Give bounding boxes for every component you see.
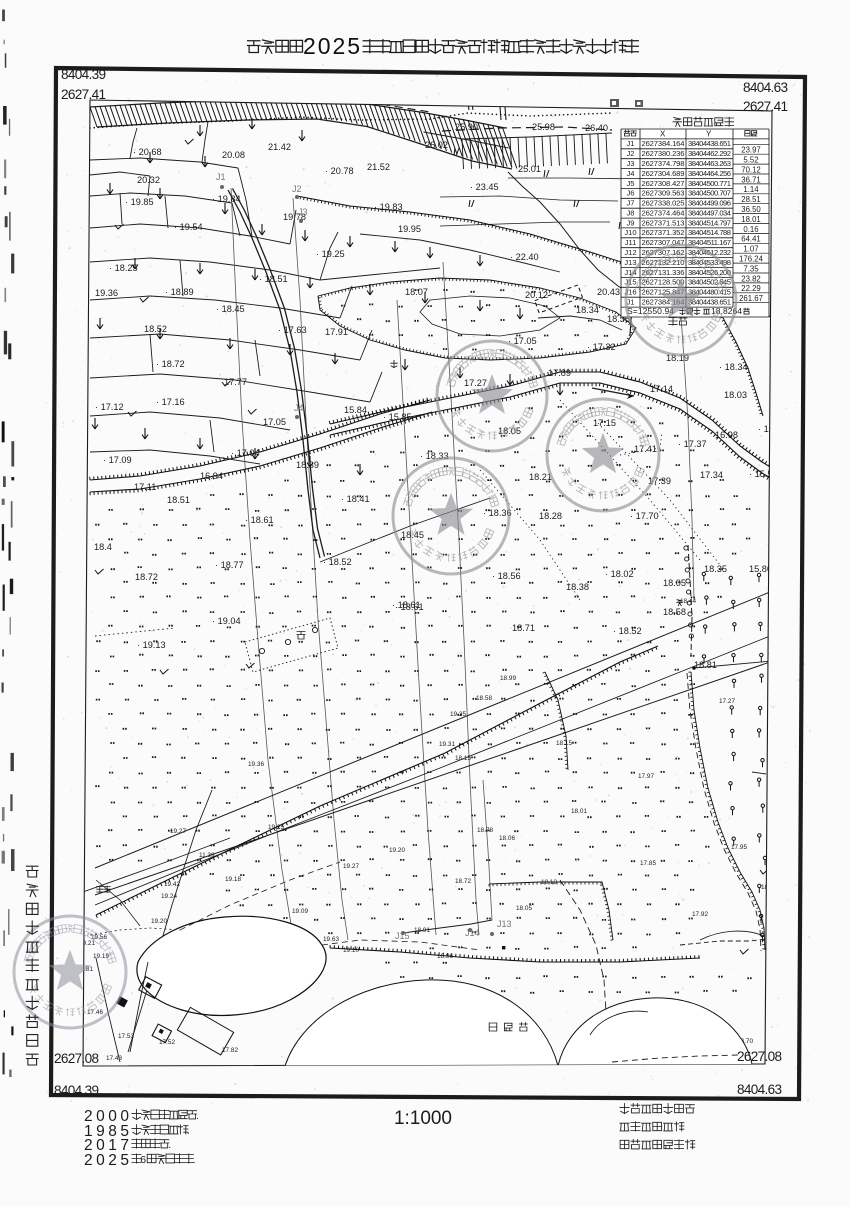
svg-text:2627128.500: 2627128.500	[642, 278, 685, 287]
svg-text:2627380.236: 2627380.236	[642, 149, 685, 158]
svg-text:19.42: 19.42	[164, 881, 180, 888]
svg-text:· 18.72: · 18.72	[156, 359, 185, 369]
svg-text:16.94: 16.94	[200, 471, 223, 481]
svg-text:1:1000: 1:1000	[394, 1108, 452, 1129]
svg-text:· 18.34: · 18.34	[719, 362, 748, 372]
svg-text:2627.41: 2627.41	[743, 99, 788, 114]
svg-text:38404499.096: 38404499.096	[688, 199, 731, 208]
svg-text:18.05: 18.05	[663, 578, 686, 588]
svg-text:· 19.04: · 19.04	[212, 616, 241, 626]
svg-text:· 15.85: · 15.85	[383, 412, 412, 422]
svg-text:18.01: 18.01	[741, 215, 761, 224]
svg-text:8404.39: 8404.39	[61, 67, 106, 82]
svg-text:1.14: 1.14	[743, 185, 759, 194]
svg-text:18.07: 18.07	[405, 287, 428, 297]
svg-text:17.53: 17.53	[118, 1033, 134, 1040]
svg-text:· 18.61: · 18.61	[395, 602, 424, 612]
svg-text:J11: J11	[625, 238, 637, 247]
svg-text:17.97: 17.97	[638, 773, 654, 780]
svg-text:· 22.40: · 22.40	[510, 252, 539, 262]
svg-text:25.01: 25.01	[518, 164, 541, 174]
svg-text:· 18.52: · 18.52	[323, 557, 352, 567]
svg-text:18.51: 18.51	[167, 495, 190, 505]
svg-text:· 19.54: · 19.54	[174, 222, 203, 232]
svg-text:38404500.707: 38404500.707	[688, 189, 731, 198]
svg-text:21.52: 21.52	[367, 162, 390, 172]
svg-text:· 18.61: · 18.61	[245, 515, 274, 525]
svg-text:17.85: 17.85	[640, 860, 656, 867]
svg-text:19.31: 19.31	[439, 741, 455, 748]
svg-text:176.24: 176.24	[739, 255, 764, 264]
svg-text:18.15: 18.15	[455, 755, 471, 762]
svg-text:20.43: 20.43	[597, 287, 620, 297]
svg-text:18.71: 18.71	[512, 623, 535, 633]
svg-text:17.89: 17.89	[548, 368, 571, 378]
svg-text:J8: J8	[626, 209, 634, 218]
svg-text:70.12: 70.12	[741, 165, 761, 174]
svg-text:38404500.771: 38404500.771	[688, 179, 731, 188]
svg-text:18.38: 18.38	[566, 582, 589, 592]
svg-text:18.39: 18.39	[296, 460, 319, 470]
svg-text:· 17.04: · 17.04	[231, 448, 260, 458]
svg-text:18.05: 18.05	[516, 905, 532, 912]
svg-text:17.95: 17.95	[731, 844, 747, 851]
svg-text:19.95: 19.95	[398, 224, 421, 234]
svg-text:17.77: 17.77	[224, 377, 247, 387]
svg-text:2627374.464: 2627374.464	[642, 209, 685, 218]
svg-text:19.18: 19.18	[225, 876, 241, 883]
svg-text:19.09: 19.09	[292, 908, 308, 915]
svg-text:2627371.352: 2627371.352	[642, 228, 685, 237]
svg-text:· 17.12: · 17.12	[95, 402, 124, 412]
svg-text:8404.39: 8404.39	[54, 1083, 99, 1098]
svg-text:38404497.034: 38404497.034	[688, 209, 731, 218]
svg-text:18.4: 18.4	[94, 542, 112, 552]
svg-text:· 20.68: · 20.68	[133, 147, 162, 157]
svg-text:J14: J14	[465, 928, 480, 938]
svg-text:18.99: 18.99	[500, 675, 516, 682]
svg-text:19.27: 19.27	[343, 863, 359, 870]
svg-text:18.91: 18.91	[414, 927, 430, 934]
svg-text:· 19.13: · 19.13	[137, 640, 166, 650]
svg-text:64.41: 64.41	[741, 235, 761, 244]
svg-text:· 19.25: · 19.25	[316, 249, 345, 259]
svg-text:17.05: 17.05	[263, 417, 286, 427]
svg-text:J2: J2	[626, 149, 634, 158]
svg-text:17.27: 17.27	[464, 378, 487, 388]
svg-text:18.03: 18.03	[724, 390, 747, 400]
svg-text:18.8264: 18.8264	[711, 306, 742, 316]
svg-text:X: X	[660, 129, 666, 138]
svg-text:J5: J5	[626, 179, 634, 188]
svg-text:19.24: 19.24	[161, 893, 177, 900]
svg-text:19.36: 19.36	[248, 761, 264, 768]
svg-text:18.06: 18.06	[499, 835, 515, 842]
svg-text:18.58: 18.58	[476, 695, 492, 702]
svg-text:8404.63: 8404.63	[743, 80, 788, 95]
svg-text:2627304.689: 2627304.689	[642, 169, 685, 178]
svg-text:38404462.292: 38404462.292	[688, 149, 731, 158]
svg-text:.: .	[168, 1140, 171, 1151]
svg-text:18.72: 18.72	[455, 878, 471, 885]
svg-text:· 18.77: · 18.77	[215, 560, 244, 570]
svg-text:· 18.45: · 18.45	[216, 304, 245, 314]
svg-text:25.90: 25.90	[455, 122, 478, 132]
svg-text:19.20: 19.20	[389, 847, 405, 854]
svg-text:38404438.651: 38404438.651	[688, 139, 731, 148]
svg-text:19.25: 19.25	[268, 824, 284, 831]
svg-text:· 19.84: · 19.84	[212, 194, 241, 204]
svg-text:J7: J7	[626, 199, 634, 208]
svg-text:· 17.09: · 17.09	[103, 455, 132, 465]
svg-text:15.86: 15.86	[749, 564, 772, 574]
svg-text:38404514.788: 38404514.788	[688, 228, 731, 237]
svg-text:S=12550.94: S=12550.94	[627, 306, 674, 316]
svg-text:19.63: 19.63	[323, 936, 339, 943]
svg-text:17.91: 17.91	[325, 327, 348, 337]
svg-text:8404.63: 8404.63	[737, 1082, 782, 1097]
svg-text:18.81: 18.81	[694, 660, 717, 670]
svg-text:18.78: 18.78	[477, 827, 493, 834]
svg-text:26.02: 26.02	[425, 140, 448, 150]
svg-text:· 18.51: · 18.51	[259, 274, 288, 284]
svg-text:19.35: 19.35	[450, 711, 466, 718]
svg-text:18.12: 18.12	[541, 879, 557, 886]
svg-text:J4: J4	[294, 403, 304, 413]
svg-text:· 18.89: · 18.89	[165, 287, 194, 297]
svg-text:2627374.798: 2627374.798	[642, 159, 685, 168]
svg-text:19.36: 19.36	[95, 288, 118, 298]
svg-text:· 18.25: · 18.25	[109, 263, 138, 273]
svg-text:23.97: 23.97	[741, 146, 761, 155]
svg-text:18.35: 18.35	[704, 564, 727, 574]
svg-text:17.27: 17.27	[719, 698, 735, 705]
svg-text:18.34: 18.34	[576, 305, 599, 315]
svg-text:25.98: 25.98	[532, 122, 555, 132]
svg-text:· 20.78: · 20.78	[325, 166, 354, 176]
svg-text:2627.08: 2627.08	[737, 1049, 782, 1064]
svg-text:18.28: 18.28	[539, 511, 562, 521]
svg-text:19.20: 19.20	[151, 918, 167, 925]
svg-text:J10: J10	[624, 228, 636, 237]
svg-text:38404464.256: 38404464.256	[688, 169, 731, 178]
svg-text:J4: J4	[626, 169, 634, 178]
svg-text:18.01: 18.01	[571, 808, 587, 815]
svg-text:2627384.164: 2627384.164	[642, 139, 685, 148]
svg-text:20.08: 20.08	[222, 150, 245, 160]
svg-text:· 17.37: · 17.37	[678, 439, 707, 449]
svg-text:· 17.16: · 17.16	[156, 397, 185, 407]
svg-text:19.10: 19.10	[343, 947, 359, 954]
svg-text:2627338.025: 2627338.025	[642, 199, 685, 208]
svg-text:· 18.56: · 18.56	[492, 571, 521, 581]
svg-text:· 17.63: · 17.63	[278, 325, 307, 335]
svg-text:J3: J3	[626, 159, 634, 168]
svg-text:· 18.02: · 18.02	[605, 569, 634, 579]
svg-text:2627308.427: 2627308.427	[642, 179, 685, 188]
svg-text:2025: 2025	[303, 33, 360, 59]
svg-text:· 19.83: · 19.83	[374, 202, 403, 212]
svg-text:28.51: 28.51	[741, 195, 761, 204]
svg-text:19.27: 19.27	[170, 828, 186, 835]
svg-text:18.96: 18.96	[437, 953, 453, 960]
svg-text:22.29: 22.29	[741, 284, 761, 293]
svg-text:.: .	[193, 1155, 196, 1166]
svg-text:· 19.85: · 19.85	[125, 197, 154, 207]
svg-text:.: .	[196, 1111, 199, 1122]
svg-text:18.15: 18.15	[556, 740, 572, 747]
svg-text:· 18.52: · 18.52	[613, 626, 642, 636]
svg-text:36.71: 36.71	[741, 175, 761, 184]
svg-text:17.34: 17.34	[700, 470, 723, 480]
svg-text:26.40: 26.40	[585, 123, 608, 133]
svg-text:J12: J12	[624, 248, 636, 257]
svg-text:J13: J13	[497, 919, 512, 929]
svg-text:J1: J1	[626, 139, 634, 148]
svg-text:J2: J2	[292, 184, 302, 194]
svg-text:261.67: 261.67	[739, 294, 763, 303]
svg-text:1.07: 1.07	[743, 245, 758, 254]
svg-text:J1: J1	[216, 172, 226, 182]
svg-text:11.39: 11.39	[199, 852, 215, 859]
svg-text:J6: J6	[626, 189, 634, 198]
svg-text:· 23.45: · 23.45	[470, 182, 499, 192]
svg-text:.: .	[187, 1126, 190, 1137]
svg-text:J13: J13	[624, 258, 636, 267]
svg-text:J9: J9	[626, 218, 634, 227]
svg-text:15.84: 15.84	[344, 405, 367, 415]
svg-text:2627371.513: 2627371.513	[642, 218, 685, 227]
svg-text:· 18.41: · 18.41	[341, 494, 370, 504]
svg-text:2627309.563: 2627309.563	[642, 189, 685, 198]
svg-text:6: 6	[140, 1155, 146, 1166]
svg-text:Y: Y	[706, 129, 712, 138]
svg-text:38404463.263: 38404463.263	[688, 159, 731, 168]
svg-text:20.12: 20.12	[525, 290, 548, 300]
svg-text:17.15: 17.15	[593, 418, 616, 428]
svg-text:· 17.70: · 17.70	[630, 511, 659, 521]
svg-text:J3: J3	[298, 207, 308, 217]
svg-text:23.82: 23.82	[741, 274, 761, 283]
svg-text:17.92: 17.92	[692, 911, 708, 918]
svg-text:2627.08: 2627.08	[54, 1051, 99, 1066]
svg-text:7.35: 7.35	[743, 264, 759, 273]
svg-text:0.16: 0.16	[743, 225, 758, 234]
svg-text:17.11: 17.11	[134, 482, 156, 492]
svg-text:38404514.797: 38404514.797	[688, 218, 731, 227]
svg-text:5.52: 5.52	[743, 156, 758, 165]
svg-text:18.52: 18.52	[144, 324, 167, 334]
svg-text:2627.41: 2627.41	[61, 87, 106, 102]
svg-text:18.21: 18.21	[529, 472, 552, 482]
svg-text:21.42: 21.42	[268, 142, 291, 152]
svg-text:20.32: 20.32	[137, 175, 160, 185]
svg-text:17.46: 17.46	[87, 1009, 103, 1016]
svg-text:18.44: 18.44	[680, 598, 696, 605]
svg-text:17.14: 17.14	[650, 384, 673, 394]
svg-text:18.72: 18.72	[135, 572, 158, 582]
svg-text:18.58: 18.58	[663, 607, 686, 617]
svg-text:· 17.32: · 17.32	[587, 342, 616, 352]
svg-text:36.50: 36.50	[741, 205, 761, 214]
svg-text:16.98: 16.98	[715, 430, 738, 440]
